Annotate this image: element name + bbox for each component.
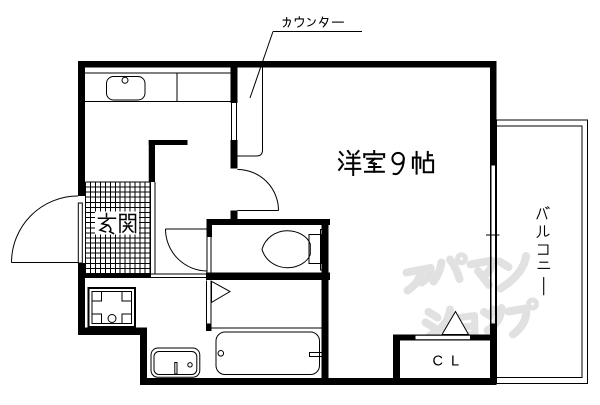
svg-text:CL: CL (433, 354, 468, 370)
